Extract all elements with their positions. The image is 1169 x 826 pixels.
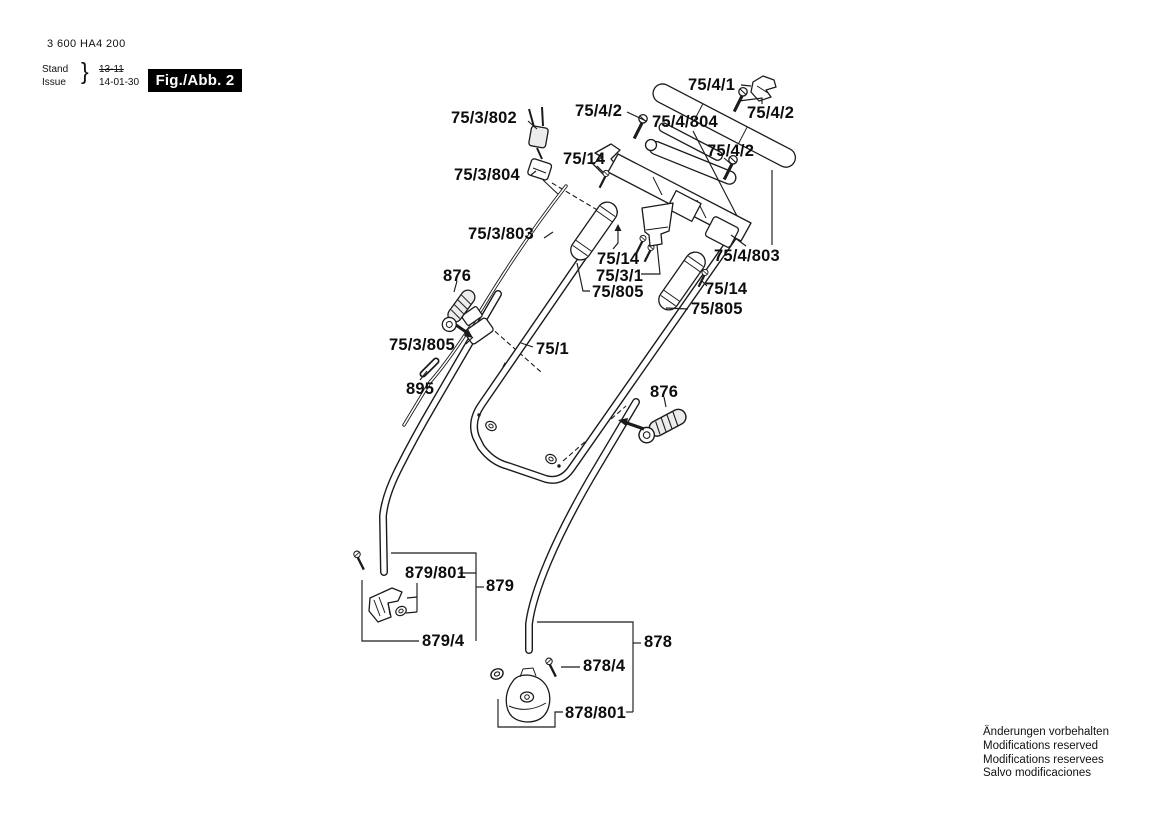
screw-75-14-icon bbox=[600, 170, 609, 187]
part-label-75-3-803: 75/3/803 bbox=[468, 226, 534, 243]
part-label-75-3-804: 75/3/804 bbox=[454, 167, 520, 184]
parts-catalog-page: 3 600 HA4 200 Stand Issue } 13-11 14-01-… bbox=[0, 0, 1169, 826]
cam-lever-879-801 bbox=[369, 588, 402, 622]
screw-878-4-icon bbox=[546, 658, 556, 677]
part-label-75-3-802: 75/3/802 bbox=[451, 110, 517, 127]
part-label-876-b: 876 bbox=[650, 384, 678, 401]
part-label-878-801: 878/801 bbox=[565, 705, 626, 722]
part-label-75-4-2-b: 75/4/2 bbox=[747, 105, 794, 122]
leader-lines bbox=[362, 85, 772, 727]
screw-75-14-icon bbox=[645, 244, 654, 261]
part-label-878: 878 bbox=[644, 634, 672, 651]
cap-nut-icon bbox=[544, 453, 558, 466]
adjuster-75-3-802 bbox=[528, 107, 548, 159]
cone-75-3-1 bbox=[642, 203, 673, 246]
part-label-75-4-803: 75/4/803 bbox=[714, 248, 780, 265]
part-label-75-805-a: 75/805 bbox=[592, 284, 644, 301]
part-label-75-14-c: 75/14 bbox=[705, 281, 747, 298]
part-label-879-801: 879/801 bbox=[405, 565, 466, 582]
cap-nut-icon bbox=[484, 420, 498, 433]
note-line-de: Änderungen vorbehalten bbox=[983, 726, 1109, 740]
nut-878-icon bbox=[489, 667, 505, 681]
nut-879-icon bbox=[394, 605, 408, 618]
part-label-75-1: 75/1 bbox=[536, 341, 569, 358]
part-label-75-3-805: 75/3/805 bbox=[389, 337, 455, 354]
part-label-895: 895 bbox=[406, 381, 434, 398]
exploded-diagram bbox=[0, 0, 1169, 826]
part-label-878-4: 878/4 bbox=[583, 658, 625, 675]
housing-878-801 bbox=[506, 668, 550, 722]
clip-75-4-1 bbox=[751, 76, 776, 101]
modifications-note: Änderungen vorbehalten Modifications res… bbox=[983, 726, 1109, 781]
lower-tube-right-878 bbox=[529, 402, 636, 650]
part-label-75-805-b: 75/805 bbox=[691, 301, 743, 318]
part-label-879: 879 bbox=[486, 578, 514, 595]
part-label-879-4: 879/4 bbox=[422, 633, 464, 650]
pin-895 bbox=[423, 361, 436, 374]
part-label-75-4-2-a: 75/4/2 bbox=[575, 103, 622, 120]
note-line-es: Salvo modificaciones bbox=[983, 767, 1109, 781]
note-line-fr: Modifications reservees bbox=[983, 754, 1109, 768]
block-75-3-804 bbox=[527, 158, 552, 181]
part-label-75-14-b: 75/14 bbox=[597, 251, 639, 268]
note-line-en: Modifications reserved bbox=[983, 740, 1109, 754]
screw-879-icon bbox=[354, 551, 364, 570]
part-label-75-14-a: 75/14 bbox=[563, 151, 605, 168]
part-label-75-4-1: 75/4/1 bbox=[688, 77, 735, 94]
part-label-75-4-804: 75/4/804 bbox=[652, 114, 718, 131]
part-label-876-a: 876 bbox=[443, 268, 471, 285]
part-label-75-4-2-c: 75/4/2 bbox=[707, 143, 754, 160]
